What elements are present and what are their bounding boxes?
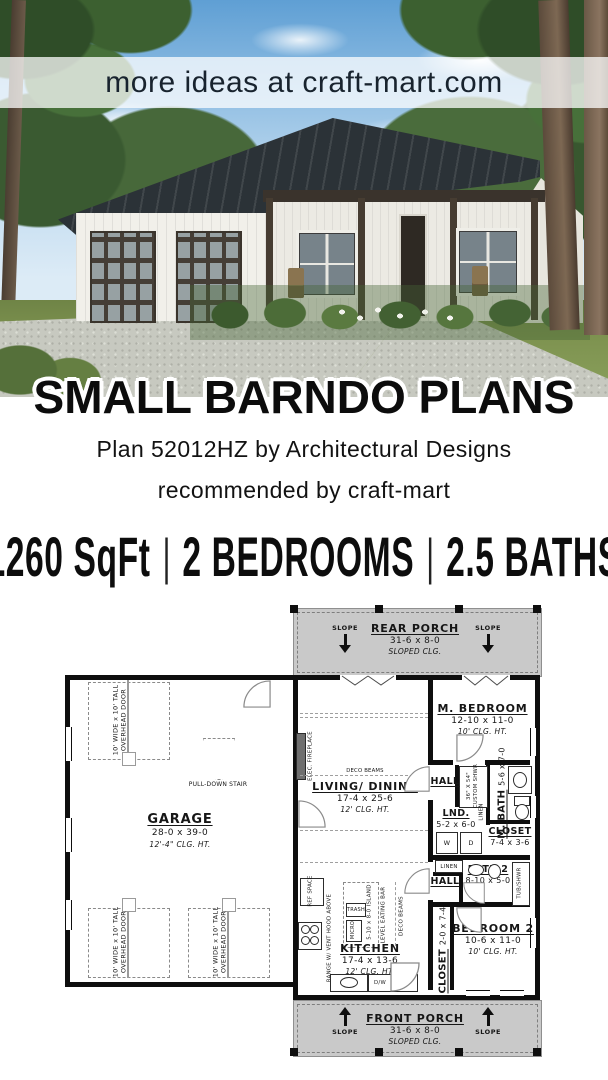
- overhead-door-zone: [188, 908, 270, 978]
- door-swing: [456, 734, 484, 762]
- overhead-door-label: 10' WIDE x 10' TALLOVERHEAD DOOR: [212, 907, 229, 978]
- rear-porch-label: REAR PORCH 31-6 x 8-0 SLOPED CLG.: [355, 622, 475, 656]
- window: [65, 727, 72, 761]
- wall: [433, 760, 453, 765]
- washer: W: [436, 832, 458, 854]
- deco-beam: [300, 717, 428, 718]
- house-photo: more ideas at craft-mart.com: [0, 0, 608, 397]
- hall-upper-label: HALL: [430, 776, 460, 788]
- stat-separator: |: [425, 528, 435, 586]
- slope-indicator: SLOPE: [320, 1014, 370, 1036]
- porch-post-marker: [375, 605, 383, 613]
- hall-lower-label: HALL: [430, 876, 460, 888]
- floor-plan: REAR PORCH 31-6 x 8-0 SLOPED CLG. SLOPE …: [0, 600, 608, 1080]
- stat-baths: 2.5 BATHS: [446, 524, 608, 589]
- page-title: SMALL BARNDO PLANS: [0, 370, 608, 424]
- stat-bedrooms: 2 BEDROOMS: [183, 524, 415, 589]
- porch-post-marker: [375, 1048, 383, 1056]
- deco-beam: [300, 862, 428, 863]
- pull-down-stair-label: PULL-DOWN STAIR: [178, 781, 258, 788]
- porch-roof-beam: [263, 190, 545, 202]
- m-closet-label: CLOSET 7-4 x 3-6: [488, 826, 532, 848]
- garage-door-left: [90, 231, 156, 323]
- laundry-label: LND. 5-2 x 6-0: [432, 808, 480, 830]
- tub-shower-label: TUB/SHWR: [517, 867, 524, 898]
- eating-bar-label: LEVEL EATING BAR: [380, 887, 387, 944]
- garage-label: GARAGE 28-0 x 39-0 12'-4" CLG. HT.: [120, 812, 240, 849]
- micro-label: MICRO: [350, 921, 357, 939]
- stats-line: 1260 SqFt | 2 BEDROOMS | 2.5 BATHS: [0, 524, 608, 589]
- door-swing: [298, 800, 326, 828]
- overhead-door-label: 10' WIDE x 10' TALLOVERHEAD DOOR: [112, 685, 129, 756]
- custom-shower-label: 36" X 54"CUSTOM SHWR: [466, 764, 480, 808]
- window: [500, 990, 524, 997]
- wall: [428, 680, 433, 765]
- dishwasher: D/W: [368, 974, 392, 992]
- porch-post-marker: [290, 605, 298, 613]
- french-door-symbol: [340, 675, 396, 687]
- promo-banner: more ideas at craft-mart.com: [0, 57, 608, 108]
- window: [65, 818, 72, 852]
- front-porch-label: FRONT PORCH 31-6 x 8-0 SLOPED CLG.: [355, 1012, 475, 1046]
- linen-cabinet: LINEN: [435, 860, 463, 873]
- bedroom2-closet-label: CLOSET 2-0 x 7-4: [437, 907, 450, 994]
- ref-space-label: REF SPACE: [308, 875, 315, 906]
- m-bath-toilet: [515, 804, 529, 820]
- m-bedroom-label: M. BEDROOM 12-10 x 11-0 10' CLG. HT.: [435, 702, 530, 736]
- tree-trunk-far-right: [584, 0, 608, 335]
- recommendation-line: recommended by craft-mart: [0, 477, 608, 504]
- deco-beam: [300, 713, 428, 714]
- slope-indicator: SLOPE: [463, 1014, 513, 1036]
- fireplace-label: ELEC. FIREPLACE: [308, 731, 315, 781]
- banner-link[interactable]: more ideas at craft-mart.com: [105, 66, 502, 100]
- overhead-door-zone: [88, 682, 170, 760]
- bath2-toilet: [488, 864, 501, 879]
- wall: [428, 900, 433, 990]
- door-swing: [456, 907, 482, 933]
- burner: [310, 936, 319, 945]
- porch-post-marker: [533, 605, 541, 613]
- slope-indicator: SLOPE: [320, 624, 370, 646]
- porch-post-marker: [533, 1048, 541, 1056]
- bath2-sink: [468, 864, 484, 876]
- electric-fireplace: [296, 733, 306, 780]
- porch-post-marker: [455, 1048, 463, 1056]
- white-flowers: [330, 300, 490, 330]
- overhead-door-zone: [88, 908, 170, 978]
- burner: [301, 936, 310, 945]
- trash-pullout: TRASH: [346, 903, 366, 917]
- door-swing: [390, 962, 420, 992]
- burner: [301, 925, 310, 934]
- porch-post-marker: [455, 605, 463, 613]
- door-swing: [243, 680, 271, 708]
- burner: [310, 925, 319, 934]
- kitchen-sink: [340, 977, 358, 988]
- window: [65, 900, 72, 930]
- deco-beam: [300, 830, 428, 831]
- deco-beams-vertical-label: DECO BEAMS: [398, 896, 405, 936]
- pinterest-pin-image: more ideas at craft-mart.com SMALL BARND…: [0, 0, 608, 1080]
- dryer: D: [460, 832, 482, 854]
- door-swing: [404, 868, 430, 894]
- stat-separator: |: [162, 528, 172, 586]
- door-swing: [463, 882, 485, 904]
- deco-beams-label: DECO BEAMS: [330, 768, 400, 774]
- deco-beam: [395, 882, 396, 946]
- porch-post-marker: [290, 1048, 298, 1056]
- window: [530, 796, 537, 818]
- door-swing: [404, 766, 430, 792]
- stat-sqft: 1260 SqFt: [0, 524, 151, 589]
- overhead-door-label: 10' WIDE x 10' TALLOVERHEAD DOOR: [112, 907, 129, 978]
- window: [530, 728, 537, 756]
- french-door-symbol: [462, 675, 510, 687]
- slope-indicator: SLOPE: [463, 624, 513, 646]
- m-bath-sink: [513, 772, 527, 788]
- island-label: 5-10 x 8-0 ISLAND: [366, 884, 373, 939]
- plan-subtitle: Plan 52012HZ by Architectural Designs: [0, 436, 608, 463]
- window: [466, 990, 490, 997]
